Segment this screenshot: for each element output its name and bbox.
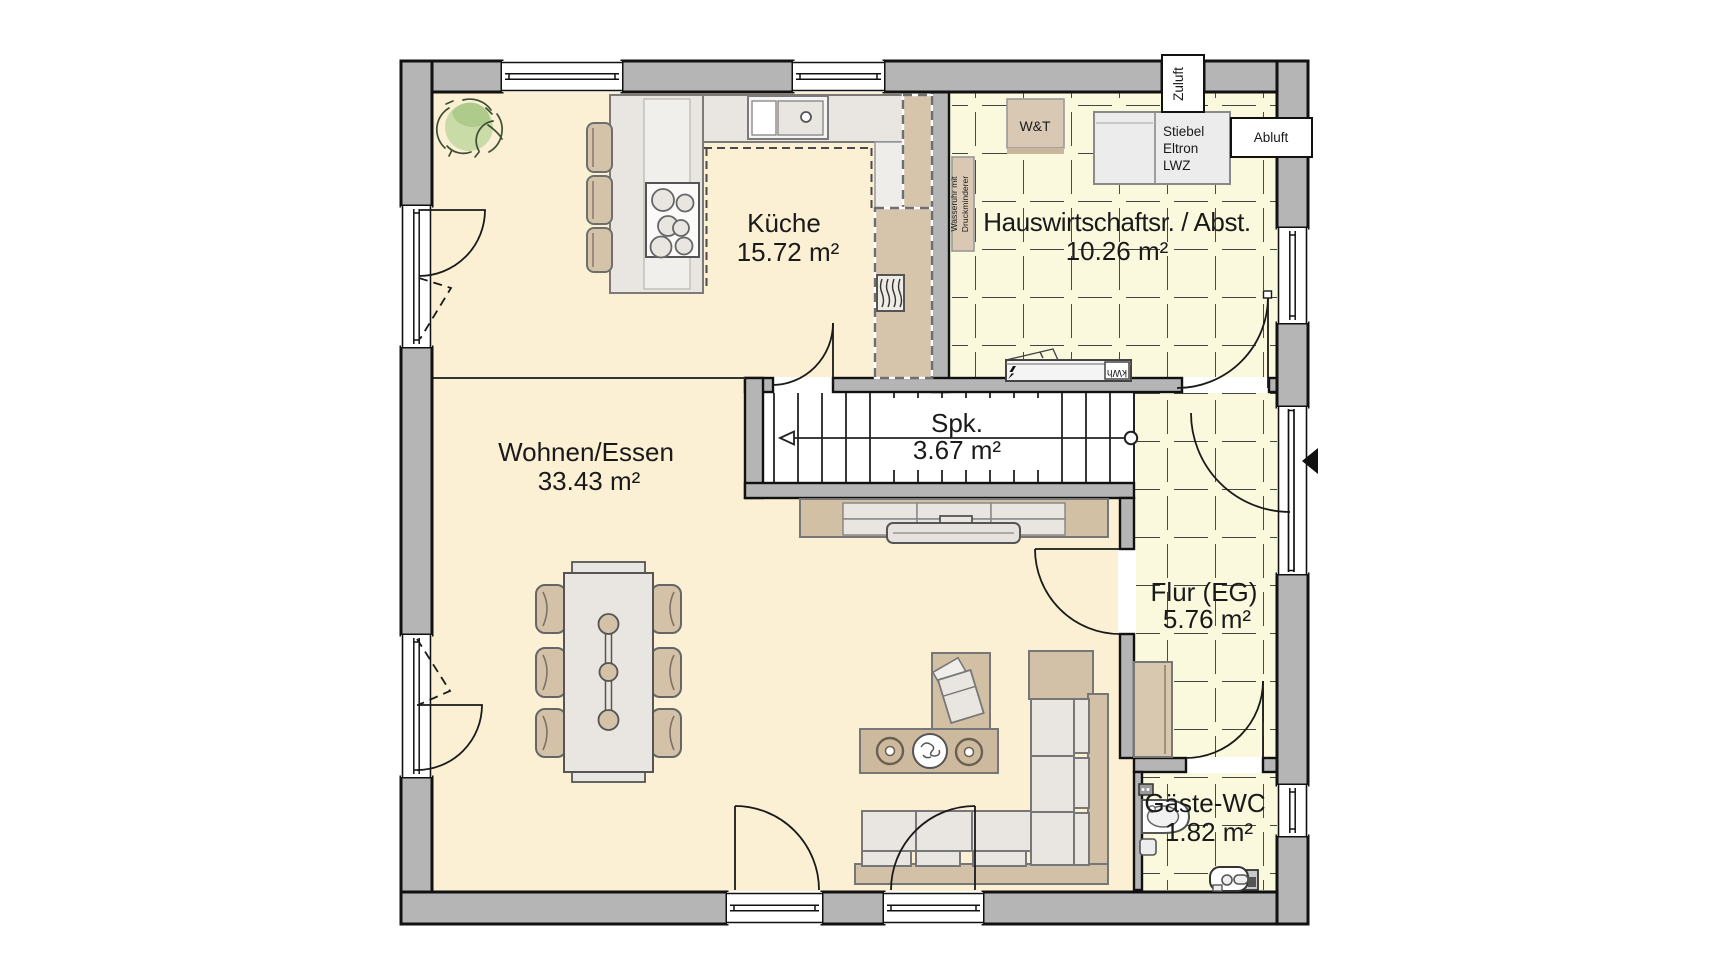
svg-text:kWh: kWh	[1107, 367, 1127, 378]
svg-text:5.76 m²: 5.76 m²	[1163, 604, 1251, 634]
svg-text:Gäste-WC: Gäste-WC	[1144, 788, 1265, 818]
svg-text:Zuluft: Zuluft	[1171, 67, 1186, 101]
svg-text:Eltron: Eltron	[1163, 141, 1198, 156]
svg-text:Küche: Küche	[747, 208, 821, 238]
svg-text:Wasseruhr mit: Wasseruhr mit	[949, 176, 959, 232]
svg-text:Spk.: Spk.	[931, 408, 983, 438]
svg-text:Stiebel: Stiebel	[1163, 124, 1204, 139]
svg-text:W&T: W&T	[1019, 118, 1051, 134]
svg-text:Abluft: Abluft	[1254, 130, 1289, 145]
svg-text:Flur (EG): Flur (EG)	[1151, 577, 1258, 607]
svg-text:Wohnen/Essen: Wohnen/Essen	[498, 437, 674, 467]
svg-text:3.67 m²: 3.67 m²	[913, 435, 1001, 465]
svg-text:Hauswirtschaftsr. / Abst.: Hauswirtschaftsr. / Abst.	[983, 207, 1250, 237]
svg-text:LWZ: LWZ	[1163, 158, 1191, 173]
svg-text:15.72 m²: 15.72 m²	[737, 237, 840, 267]
svg-text:33.43 m²: 33.43 m²	[538, 466, 641, 496]
svg-text:Druckminderer: Druckminderer	[960, 176, 970, 232]
svg-text:10.26 m²: 10.26 m²	[1066, 236, 1169, 266]
svg-text:1.82 m²: 1.82 m²	[1165, 817, 1253, 847]
